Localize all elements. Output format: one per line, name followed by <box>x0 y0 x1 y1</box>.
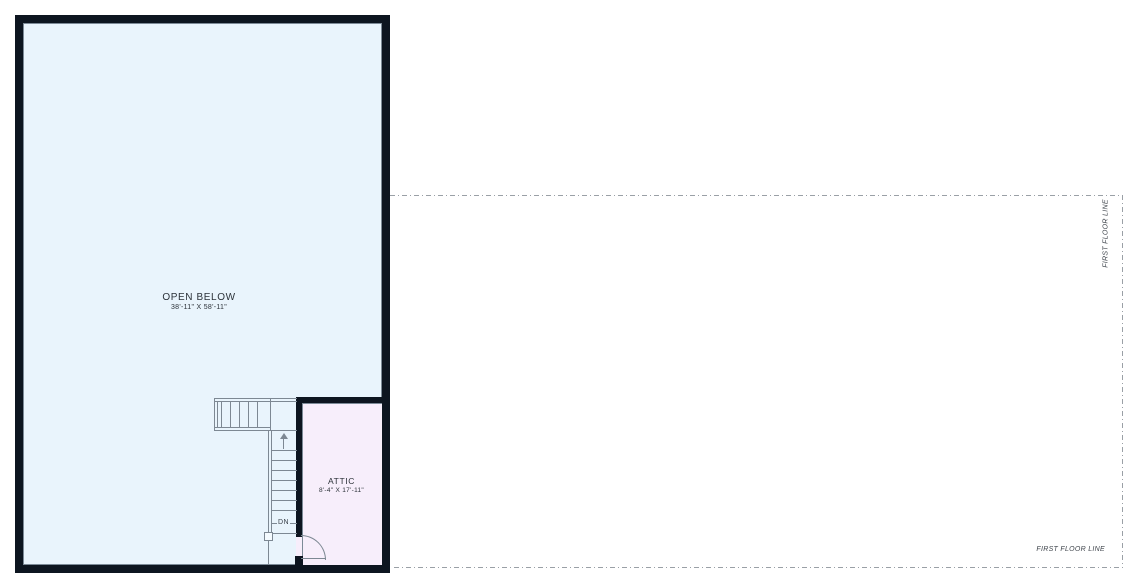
stair-rail <box>214 427 271 428</box>
attic-door-leaf <box>301 558 326 559</box>
stair-tread <box>230 401 231 428</box>
first-floor-line-top <box>390 195 1122 196</box>
stair-tread <box>271 480 297 481</box>
stair-tread <box>271 500 297 501</box>
stair-landing-edge <box>270 398 271 431</box>
stair-tread <box>271 450 297 451</box>
stair-tread <box>271 533 297 534</box>
first-floor-line-bottom <box>394 567 1122 568</box>
stair-rail <box>214 398 215 431</box>
stair-direction-arrow-icon <box>283 438 284 449</box>
first-floor-line-label-vertical: FIRST FLOOR LINE <box>1103 199 1112 269</box>
attic-room-dimensions: 8'-4" X 17'-11" <box>302 487 381 494</box>
stair-tread <box>239 401 240 428</box>
stair-tread <box>221 401 222 428</box>
stair-tread <box>257 401 258 428</box>
stair-tread <box>290 523 297 524</box>
attic-room-name: ATTIC <box>302 476 381 486</box>
open-below-room-dimensions: 38'-11" X 58'-11" <box>119 304 279 311</box>
stair-tread <box>271 470 297 471</box>
stair-tread <box>271 490 297 491</box>
stair-rail <box>214 430 297 431</box>
attic-floor-plan-drawing: DN OPEN BELOW 38'-11" X 58'-11" ATTIC 8'… <box>0 0 1134 587</box>
stair-rail <box>217 401 218 428</box>
stair-direction-arrowhead-icon <box>280 433 288 439</box>
stair-dn-label: DN <box>276 519 291 526</box>
attic-label-block: ATTIC 8'-4" X 17'-11" <box>302 476 381 494</box>
stair-rail <box>214 401 297 402</box>
stair-newel-post <box>264 532 273 541</box>
stair-tread <box>271 460 297 461</box>
open-below-room-name: OPEN BELOW <box>119 292 279 303</box>
first-floor-line-right <box>1122 195 1123 568</box>
stair-tread <box>248 401 249 428</box>
stair-rail <box>271 430 272 534</box>
stair-rail <box>268 540 269 565</box>
stair-tread <box>271 510 297 511</box>
stair-rail <box>268 430 269 540</box>
open-below-label-block: OPEN BELOW 38'-11" X 58'-11" <box>119 292 279 311</box>
stair-rail <box>214 398 297 399</box>
first-floor-line-label-bottom: FIRST FLOOR LINE <box>1015 546 1105 553</box>
